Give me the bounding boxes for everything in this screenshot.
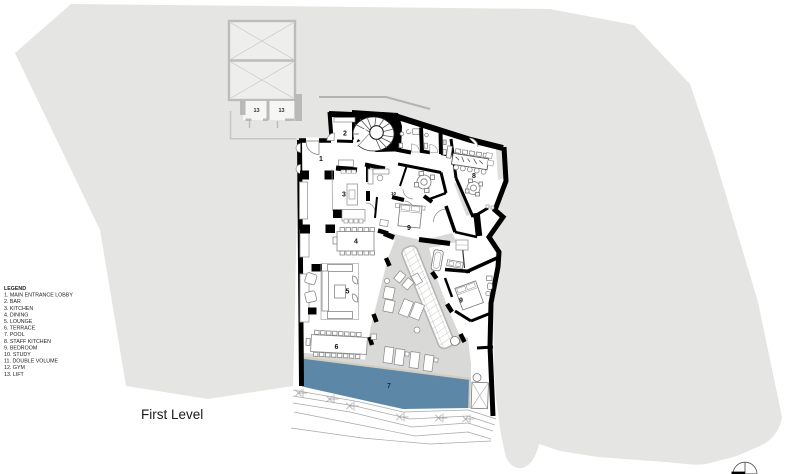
svg-text:9: 9 xyxy=(407,225,411,232)
svg-text:4: 4 xyxy=(354,239,358,246)
svg-text:6. TERRACE: 6. TERRACE xyxy=(4,326,36,332)
svg-text:10: 10 xyxy=(391,191,397,196)
svg-text:2: 2 xyxy=(343,131,347,138)
svg-text:3: 3 xyxy=(342,192,346,199)
svg-text:First Level: First Level xyxy=(141,407,203,422)
svg-text:LEGEND: LEGEND xyxy=(4,286,26,292)
svg-text:3. KITCHEN: 3. KITCHEN xyxy=(4,306,33,312)
svg-text:11. DOUBLE VOLUME: 11. DOUBLE VOLUME xyxy=(4,359,59,365)
svg-text:13: 13 xyxy=(278,108,284,114)
svg-text:5. LOUNGE: 5. LOUNGE xyxy=(4,319,33,325)
svg-text:5: 5 xyxy=(346,289,350,296)
svg-text:12. GYM: 12. GYM xyxy=(4,365,25,371)
svg-text:6: 6 xyxy=(335,344,339,351)
svg-text:2. BAR: 2. BAR xyxy=(4,299,21,305)
svg-text:10. STUDY: 10. STUDY xyxy=(4,352,31,358)
svg-text:4. DINING: 4. DINING xyxy=(4,312,28,318)
svg-text:13. LIFT: 13. LIFT xyxy=(4,372,24,378)
svg-text:13: 13 xyxy=(253,108,259,114)
svg-text:1. MAIN ENTRANCE LOBBY: 1. MAIN ENTRANCE LOBBY xyxy=(4,293,73,299)
svg-text:7. POOL: 7. POOL xyxy=(4,332,25,338)
svg-text:7: 7 xyxy=(387,383,391,390)
svg-text:8. STAFF KITCHEN: 8. STAFF KITCHEN xyxy=(4,339,51,345)
svg-text:9. BEDROOM: 9. BEDROOM xyxy=(4,345,37,351)
svg-text:9: 9 xyxy=(459,298,463,305)
svg-text:1: 1 xyxy=(319,156,323,163)
